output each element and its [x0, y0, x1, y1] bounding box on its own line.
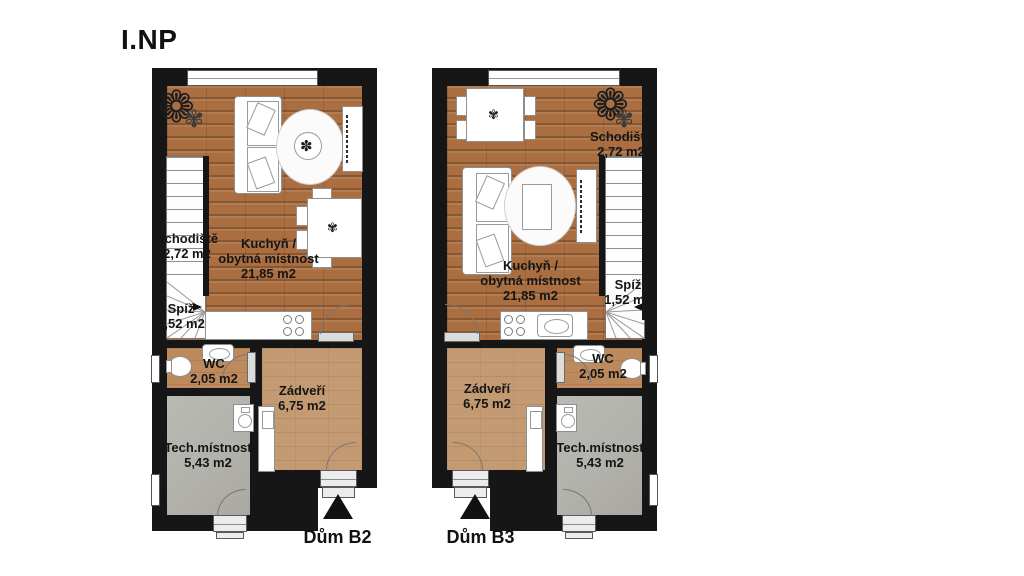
b2-table-plant-icon: ✽ — [300, 139, 313, 154]
b2-tech-threshold — [216, 532, 244, 539]
b2-toilet-tank — [166, 360, 172, 373]
b2-label-wc: WC 2,05 m2 — [179, 356, 249, 386]
b3-tech-threshold — [565, 532, 593, 539]
b2-entrance-door — [320, 470, 357, 487]
b3-wall-right-cap — [642, 120, 657, 320]
b3-house-label: Dům B3 — [438, 527, 523, 548]
b3-tv-cabinet — [576, 169, 597, 243]
b2-centerpiece-icon: ✾ — [327, 221, 338, 234]
b3-dining-chair — [524, 96, 536, 116]
b2-label-zadveri: Zádveří 6,75 m2 — [260, 383, 344, 413]
floorplan-canvas: I.NP ❁ ✾ ✽ — [0, 0, 1024, 576]
b2-label-kuchyn: Kuchyň / obytná místnost 21,85 m2 — [196, 236, 341, 281]
b3-staircase — [605, 156, 645, 339]
b2-plant-small-icon: ✾ — [184, 108, 204, 132]
b3-label-wc: WC 2,05 m2 — [568, 351, 638, 381]
b3-stove-icon — [504, 315, 528, 336]
b2-window-top — [187, 70, 318, 86]
b2-window-wc — [151, 355, 160, 383]
b3-washing-machine-icon — [556, 404, 577, 432]
b2-label-tech: Tech.místnost 5,43 m2 — [160, 440, 256, 470]
b2-tech-door — [213, 515, 247, 532]
b3-label-zadveri: Zádveří 6,75 m2 — [445, 381, 529, 411]
b3-window-wc — [649, 355, 658, 383]
b2-house-label: Dům B2 — [295, 527, 380, 548]
b2-sofa — [234, 96, 282, 194]
b3-coffee-table — [522, 184, 552, 230]
b3-tech-door — [562, 515, 596, 532]
b2-entrance-arrow-icon — [323, 494, 353, 519]
b3-dining-chair — [524, 120, 536, 140]
b3-window-tech — [649, 474, 658, 506]
b2-hall-cabinet — [258, 406, 275, 472]
b2-window-tech — [151, 474, 160, 506]
b3-label-tech: Tech.místnost 5,43 m2 — [552, 440, 648, 470]
b3-centerpiece-icon: ✾ — [488, 108, 499, 121]
b2-label-spiz: Spíž 1,52 m2 — [150, 301, 212, 331]
b3-label-kuchyn: Kuchyň / obytná místnost 21,85 m2 — [458, 258, 603, 303]
b2-tv-cabinet — [342, 106, 363, 172]
b3-toilet-tank — [640, 362, 646, 375]
b3-entrance-door — [452, 470, 489, 487]
b3-entrance-arrow-icon — [460, 494, 490, 519]
page-title: I.NP — [121, 24, 177, 56]
b3-kitchen-sink — [537, 314, 573, 337]
b3-hall-cabinet — [526, 406, 543, 472]
b2-washing-machine-icon — [233, 404, 254, 432]
b2-stove-icon — [283, 315, 307, 336]
